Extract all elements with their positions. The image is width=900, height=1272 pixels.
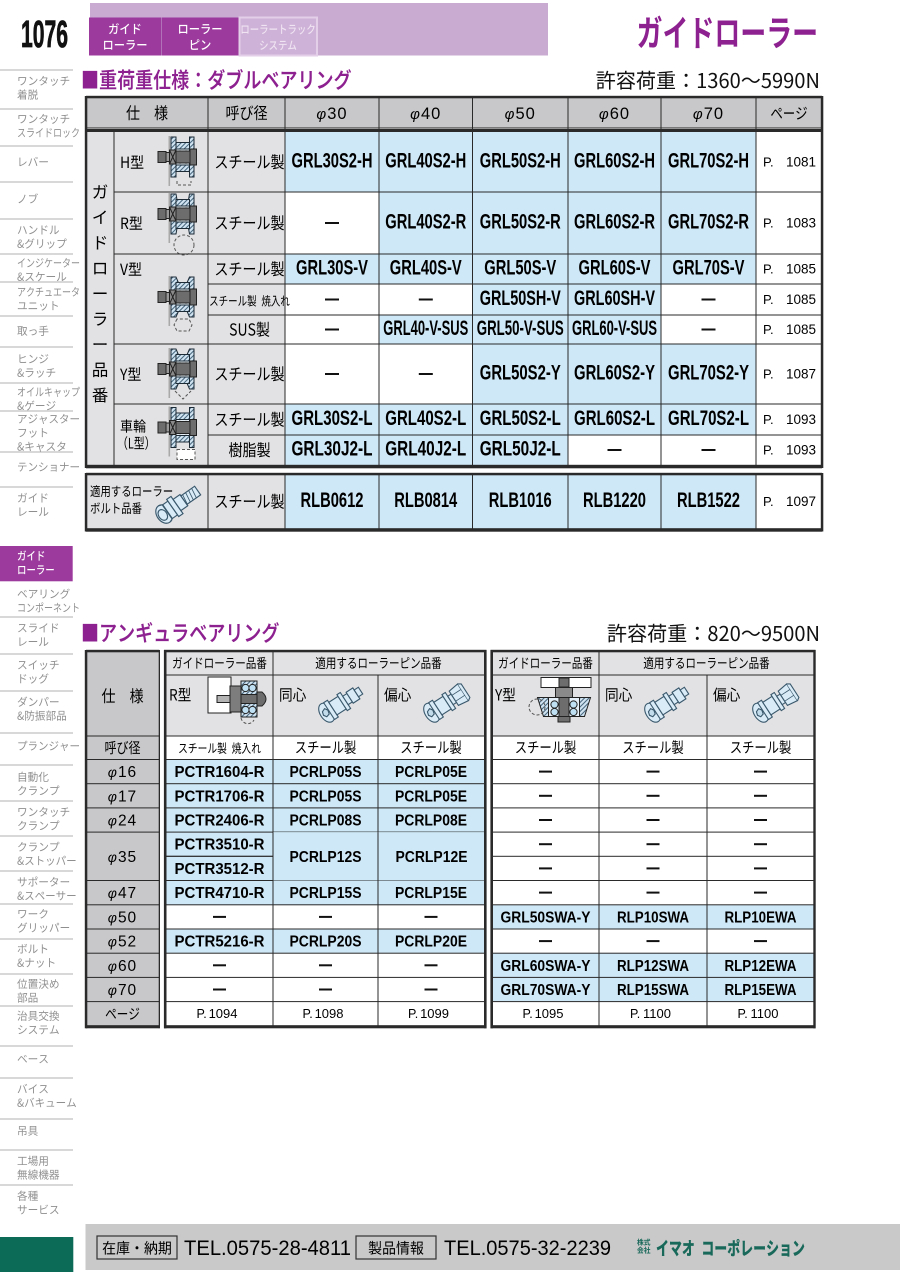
svg-text:PCTR3510-R: PCTR3510-R bbox=[175, 837, 265, 854]
svg-text:RLB1522: RLB1522 bbox=[677, 489, 740, 512]
svg-text:P.: P. bbox=[763, 367, 774, 382]
svg-text:PCTR1706-R: PCTR1706-R bbox=[175, 788, 265, 805]
svg-text:GRL50S2-H: GRL50S2-H bbox=[480, 150, 561, 173]
svg-text:PCRLP08E: PCRLP08E bbox=[395, 813, 467, 830]
svg-text:GRL50J2-L: GRL50J2-L bbox=[480, 438, 561, 461]
svg-text:GRL60S2-Y: GRL60S2-Y bbox=[574, 362, 655, 385]
svg-text:P.: P. bbox=[763, 216, 774, 231]
svg-text:PCRLP05S: PCRLP05S bbox=[290, 788, 362, 805]
svg-text:P.: P. bbox=[763, 443, 774, 458]
svg-text:GRL40S2-R: GRL40S2-R bbox=[385, 211, 466, 234]
svg-text:PCTR4710-R: PCTR4710-R bbox=[175, 885, 265, 902]
svg-text:GRL60SWA-Y: GRL60SWA-Y bbox=[501, 958, 592, 975]
svg-text:PCTR5216-R: PCTR5216-R bbox=[175, 934, 265, 951]
svg-text:φ30: φ30 bbox=[316, 105, 347, 123]
svg-text:TEL.0575-28-4811: TEL.0575-28-4811 bbox=[184, 1237, 351, 1260]
svg-text:GRL50SWA-Y: GRL50SWA-Y bbox=[501, 909, 592, 926]
svg-text:1093: 1093 bbox=[786, 443, 816, 458]
svg-text:PCRLP20E: PCRLP20E bbox=[395, 934, 467, 951]
svg-text:P.: P. bbox=[763, 155, 774, 170]
svg-text:P.: P. bbox=[523, 1007, 533, 1021]
svg-text:1097: 1097 bbox=[786, 494, 816, 509]
svg-text:P.: P. bbox=[763, 412, 774, 427]
svg-text:φ60: φ60 bbox=[599, 105, 630, 123]
svg-text:PCRLP05E: PCRLP05E bbox=[395, 788, 467, 805]
svg-text:RLP10SWA: RLP10SWA bbox=[617, 909, 689, 926]
svg-text:1087: 1087 bbox=[786, 367, 816, 382]
svg-text:TEL.0575-32-2239: TEL.0575-32-2239 bbox=[444, 1237, 611, 1260]
svg-text:GRL30S2-H: GRL30S2-H bbox=[292, 150, 373, 173]
svg-text:GRL50-V-SUS: GRL50-V-SUS bbox=[477, 317, 564, 340]
svg-text:GRL30S2-L: GRL30S2-L bbox=[292, 407, 373, 430]
svg-text:φ35: φ35 bbox=[108, 849, 137, 866]
svg-text:φ17: φ17 bbox=[108, 788, 137, 805]
svg-text:GRL70S2-Y: GRL70S2-Y bbox=[668, 362, 749, 385]
svg-text:GRL40S2-L: GRL40S2-L bbox=[385, 407, 466, 430]
svg-text:PCTR3512-R: PCTR3512-R bbox=[175, 861, 265, 878]
svg-text:GRL30S-V: GRL30S-V bbox=[296, 257, 368, 280]
svg-text:GRL60SH-V: GRL60SH-V bbox=[574, 287, 655, 310]
svg-text:GRL50S-V: GRL50S-V bbox=[484, 257, 556, 280]
svg-text:φ70: φ70 bbox=[693, 105, 724, 123]
svg-text:RLP12SWA: RLP12SWA bbox=[617, 958, 689, 975]
svg-text:1083: 1083 bbox=[786, 216, 816, 231]
svg-text:P.: P. bbox=[763, 322, 774, 337]
svg-text:GRL60-V-SUS: GRL60-V-SUS bbox=[572, 317, 657, 340]
svg-text:GRL60S-V: GRL60S-V bbox=[579, 257, 651, 280]
svg-text:PCRLP05E: PCRLP05E bbox=[395, 764, 467, 781]
svg-text:1098: 1098 bbox=[315, 1006, 344, 1021]
svg-text:1095: 1095 bbox=[535, 1006, 564, 1021]
svg-text:P.: P. bbox=[763, 292, 774, 307]
svg-text:GRL40S-V: GRL40S-V bbox=[390, 257, 462, 280]
svg-text:RLP10EWA: RLP10EWA bbox=[725, 909, 797, 926]
svg-text:P.: P. bbox=[197, 1007, 207, 1021]
svg-text:1100: 1100 bbox=[643, 1006, 671, 1021]
svg-text:GRL40S2-H: GRL40S2-H bbox=[385, 150, 466, 173]
svg-text:GRL60S2-R: GRL60S2-R bbox=[574, 211, 655, 234]
svg-text:PCRLP05S: PCRLP05S bbox=[290, 764, 362, 781]
svg-text:GRL60S2-H: GRL60S2-H bbox=[574, 150, 655, 173]
svg-text:PCTR2406-R: PCTR2406-R bbox=[175, 813, 265, 830]
svg-text:GRL70S2-H: GRL70S2-H bbox=[668, 150, 749, 173]
svg-text:P.: P. bbox=[630, 1007, 640, 1021]
svg-text:φ16: φ16 bbox=[108, 764, 137, 781]
svg-text:P.: P. bbox=[763, 262, 774, 277]
svg-text:P.: P. bbox=[763, 494, 774, 509]
svg-text:φ40: φ40 bbox=[410, 105, 441, 123]
svg-text:1081: 1081 bbox=[786, 155, 816, 170]
svg-text:PCRLP20S: PCRLP20S bbox=[290, 934, 362, 951]
svg-text:1094: 1094 bbox=[209, 1006, 238, 1021]
svg-text:φ47: φ47 bbox=[108, 885, 137, 902]
svg-text:RLP15SWA: RLP15SWA bbox=[617, 982, 689, 999]
svg-text:RLB0814: RLB0814 bbox=[394, 489, 457, 512]
svg-text:GRL40J2-L: GRL40J2-L bbox=[385, 438, 466, 461]
svg-text:RLP15EWA: RLP15EWA bbox=[725, 982, 797, 999]
svg-text:PCTR1604-R: PCTR1604-R bbox=[175, 764, 265, 781]
svg-text:RLB1220: RLB1220 bbox=[583, 489, 646, 512]
svg-text:GRL50SH-V: GRL50SH-V bbox=[480, 287, 561, 310]
svg-text:PCRLP15E: PCRLP15E bbox=[395, 885, 467, 902]
svg-text:PCRLP15S: PCRLP15S bbox=[290, 885, 362, 902]
svg-text:1085: 1085 bbox=[786, 322, 816, 337]
svg-text:GRL30J2-L: GRL30J2-L bbox=[292, 438, 373, 461]
svg-text:GRL50S2-Y: GRL50S2-Y bbox=[480, 362, 561, 385]
svg-text:P.: P. bbox=[738, 1007, 748, 1021]
svg-text:PCRLP12E: PCRLP12E bbox=[396, 849, 468, 866]
svg-text:1085: 1085 bbox=[786, 292, 816, 307]
svg-text:P.: P. bbox=[408, 1007, 418, 1021]
svg-text:RLB0612: RLB0612 bbox=[301, 489, 364, 512]
svg-text:GRL70SWA-Y: GRL70SWA-Y bbox=[501, 982, 592, 999]
svg-text:1093: 1093 bbox=[786, 412, 816, 427]
svg-text:1076: 1076 bbox=[21, 14, 68, 56]
svg-text:GRL50S2-R: GRL50S2-R bbox=[480, 211, 561, 234]
svg-text:P.: P. bbox=[303, 1007, 313, 1021]
svg-text:RLP12EWA: RLP12EWA bbox=[725, 958, 797, 975]
svg-text:φ24: φ24 bbox=[108, 813, 137, 830]
svg-text:PCRLP12S: PCRLP12S bbox=[290, 849, 362, 866]
svg-text:PCRLP08S: PCRLP08S bbox=[290, 813, 362, 830]
svg-text:1100: 1100 bbox=[751, 1006, 779, 1021]
svg-text:φ50: φ50 bbox=[108, 909, 137, 926]
svg-text:GRL70S2-R: GRL70S2-R bbox=[668, 211, 749, 234]
svg-text:GRL60S2-L: GRL60S2-L bbox=[574, 407, 655, 430]
svg-text:1085: 1085 bbox=[786, 262, 816, 277]
svg-text:GRL50S2-L: GRL50S2-L bbox=[480, 407, 561, 430]
svg-text:GRL70S2-L: GRL70S2-L bbox=[668, 407, 749, 430]
svg-text:RLB1016: RLB1016 bbox=[489, 489, 552, 512]
svg-text:φ60: φ60 bbox=[108, 958, 137, 975]
svg-text:GRL70S-V: GRL70S-V bbox=[673, 257, 745, 280]
svg-text:1099: 1099 bbox=[420, 1006, 449, 1021]
svg-text:GRL40-V-SUS: GRL40-V-SUS bbox=[383, 317, 468, 340]
svg-text:φ70: φ70 bbox=[108, 982, 137, 999]
svg-text:φ52: φ52 bbox=[108, 934, 137, 951]
svg-text:φ50: φ50 bbox=[505, 105, 536, 123]
